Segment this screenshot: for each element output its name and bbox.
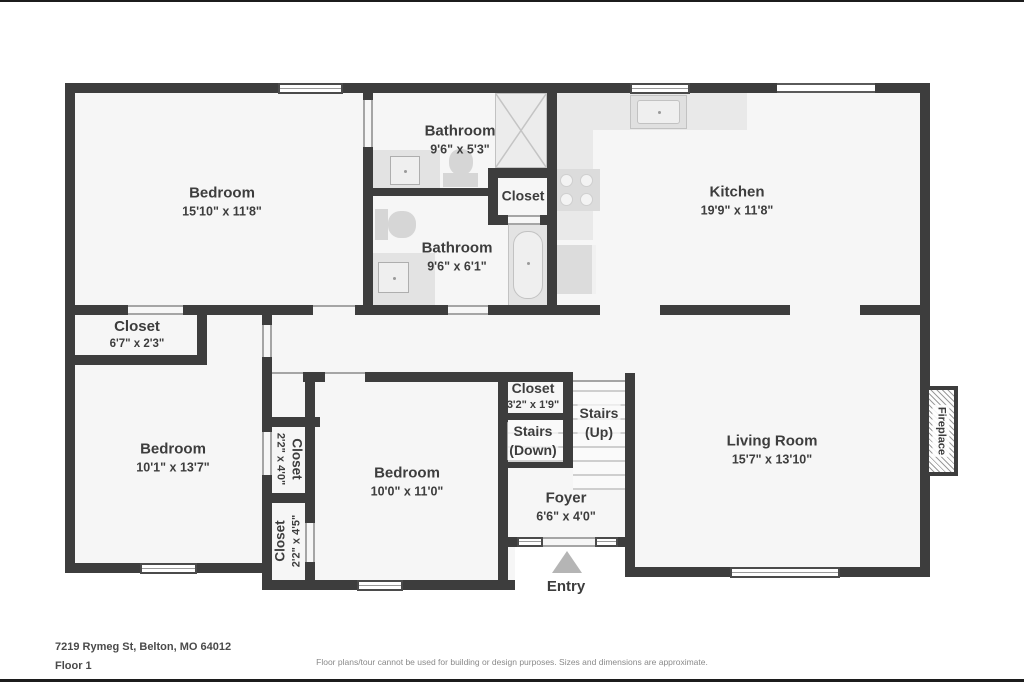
wall-segment — [498, 537, 517, 547]
closet3-label: Closet 2'2" x 4'5" — [271, 515, 304, 567]
closet-slider-opening — [128, 305, 183, 315]
wall-segment — [488, 305, 600, 315]
stove-icon — [555, 169, 600, 211]
wall-segment — [498, 413, 573, 420]
wall-segment — [660, 305, 790, 315]
wall-segment — [488, 215, 508, 225]
wall-segment — [305, 503, 315, 523]
wall-segment — [305, 373, 315, 503]
wall-segment — [373, 188, 490, 196]
sidelight-window-icon — [595, 537, 618, 547]
bedroom3-label: Bedroom 10'0" x 11'0" — [371, 463, 444, 500]
closet-door-opening — [305, 523, 315, 562]
kitchen-sink-basin-icon — [637, 100, 680, 124]
wall-segment — [498, 462, 573, 468]
window-icon — [278, 83, 343, 94]
toilet-bowl-icon — [388, 211, 416, 238]
closet1-label: Closet 6'7" x 2'3" — [110, 317, 165, 353]
closet2-label: Closet 2'2" x 4'0" — [272, 433, 305, 485]
closet4-label: Closet 3'2" x 1'9" — [507, 379, 559, 413]
top-border-bar — [0, 0, 1024, 2]
fireplace-label: Fireplace — [933, 405, 950, 457]
wall-segment — [65, 355, 207, 365]
wall-segment — [65, 83, 75, 573]
stairs-down-label: Stairs (Down) — [507, 422, 558, 460]
toilet-tank-icon — [443, 173, 478, 187]
passage-opening — [790, 305, 860, 315]
kitchen-counter-icon — [557, 93, 593, 240]
door-opening — [313, 305, 355, 315]
wall-segment — [920, 83, 930, 577]
wall-segment — [65, 305, 128, 315]
floor-number-text: Floor 1 — [55, 660, 92, 672]
sink-icon — [390, 156, 420, 185]
window-icon — [777, 83, 875, 93]
living-room-label: Living Room 15'7" x 13'10" — [727, 431, 818, 468]
bathroom1-label: Bathroom 9'6" x 5'3" — [425, 121, 496, 158]
closet-door-opening — [508, 215, 540, 225]
wall-segment — [305, 562, 315, 590]
disclaimer-text: Floor plans/tour cannot be used for buil… — [316, 657, 708, 667]
bedroom1-label: Bedroom 15'10" x 11'8" — [182, 183, 262, 220]
window-icon — [140, 563, 197, 574]
entry-door-opening — [543, 537, 595, 547]
door-opening — [363, 100, 373, 147]
kitchen-label: Kitchen 19'9" x 11'8" — [701, 182, 774, 219]
fridge-icon — [557, 245, 596, 294]
wall-segment — [547, 83, 557, 315]
bathroom2-label: Bathroom 9'6" x 6'1" — [422, 238, 493, 275]
bath-closet-label: Closet — [502, 187, 545, 206]
wall-segment — [563, 373, 573, 468]
window-icon — [630, 83, 690, 94]
foyer-label: Foyer 6'6" x 4'0" — [536, 488, 596, 525]
sidelight-window-icon — [517, 537, 543, 547]
address-text: 7219 Rymeg St, Belton, MO 64012 — [55, 641, 231, 653]
bedroom2-label: Bedroom 10'1" x 13'7" — [136, 439, 209, 476]
stairs-up-label: Stairs (Up) — [578, 404, 621, 442]
wall-segment — [860, 305, 930, 315]
wall-segment — [183, 305, 313, 315]
window-icon — [730, 567, 840, 578]
door-opening — [448, 305, 488, 315]
closet-door-opening — [262, 432, 272, 475]
entry-label: Entry — [547, 577, 585, 597]
window-icon — [357, 580, 403, 591]
stairs-opening — [573, 372, 625, 382]
wall-segment — [625, 373, 635, 577]
wall-segment — [363, 147, 373, 315]
bathtub-basin-icon — [513, 231, 543, 299]
floor-plan-page: Fireplace Bedroom 15'10" x 11'8" Bathroo… — [0, 0, 1024, 682]
passage-opening — [600, 305, 660, 315]
sink-icon — [378, 262, 409, 293]
wall-segment — [262, 315, 272, 325]
nook-opening — [272, 372, 303, 382]
door-opening — [325, 372, 365, 382]
shower-icon — [495, 93, 547, 168]
door-opening — [262, 325, 272, 357]
toilet-tank-icon — [375, 209, 388, 240]
entry-arrow-icon — [552, 551, 582, 573]
